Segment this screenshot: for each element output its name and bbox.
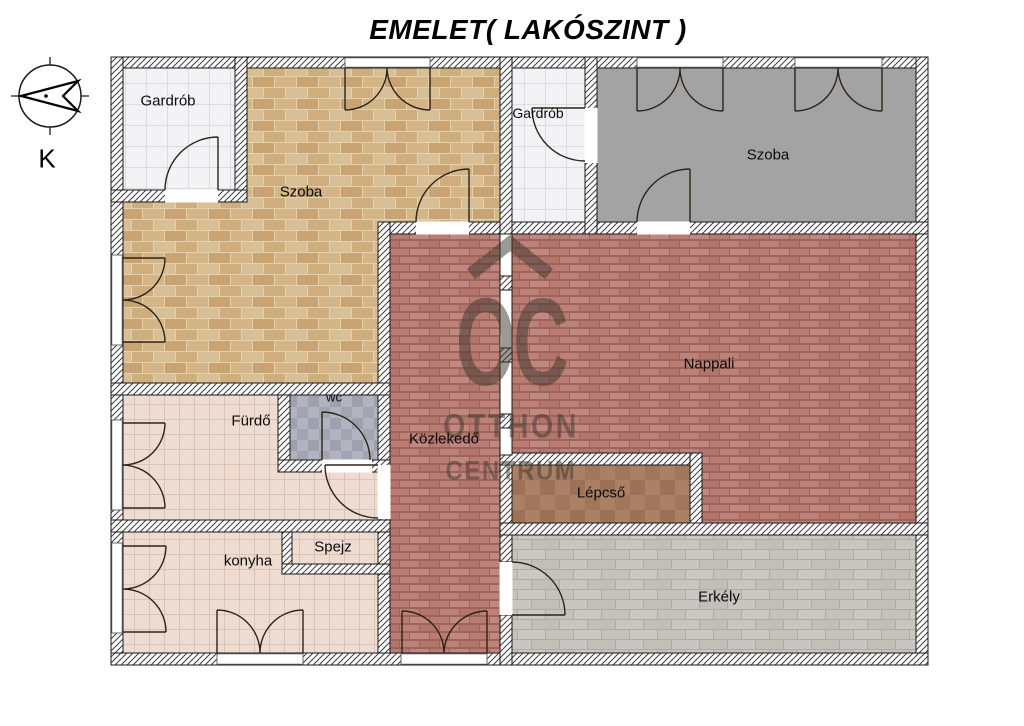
- room-label-szoba2: Szoba: [747, 147, 790, 164]
- room-label-gardrob1: Gardrób: [140, 93, 195, 110]
- watermark-monogram: OC: [456, 272, 566, 414]
- room-label-spejz: Spejz: [314, 539, 352, 556]
- room-label-konyha: konyha: [224, 553, 272, 570]
- room-label-wc: wc: [326, 390, 342, 405]
- compass-label: K: [38, 144, 55, 175]
- room-label-kozlekedo: Közlekedő: [409, 431, 479, 448]
- room-label-furdo: Fürdő: [231, 413, 270, 430]
- room-label-szoba1: Szoba: [280, 184, 323, 201]
- room-label-erkely: Erkély: [698, 589, 740, 606]
- room-label-nappali: Nappali: [684, 356, 735, 373]
- room-label-gardrob2: Gardrób: [512, 105, 563, 121]
- watermark-line-centrum: CENTRUM: [445, 456, 576, 487]
- room-label-lepcso: Lépcső: [577, 485, 625, 502]
- floor-plan-page: EMELET( LAKÓSZINT ): [0, 0, 1024, 726]
